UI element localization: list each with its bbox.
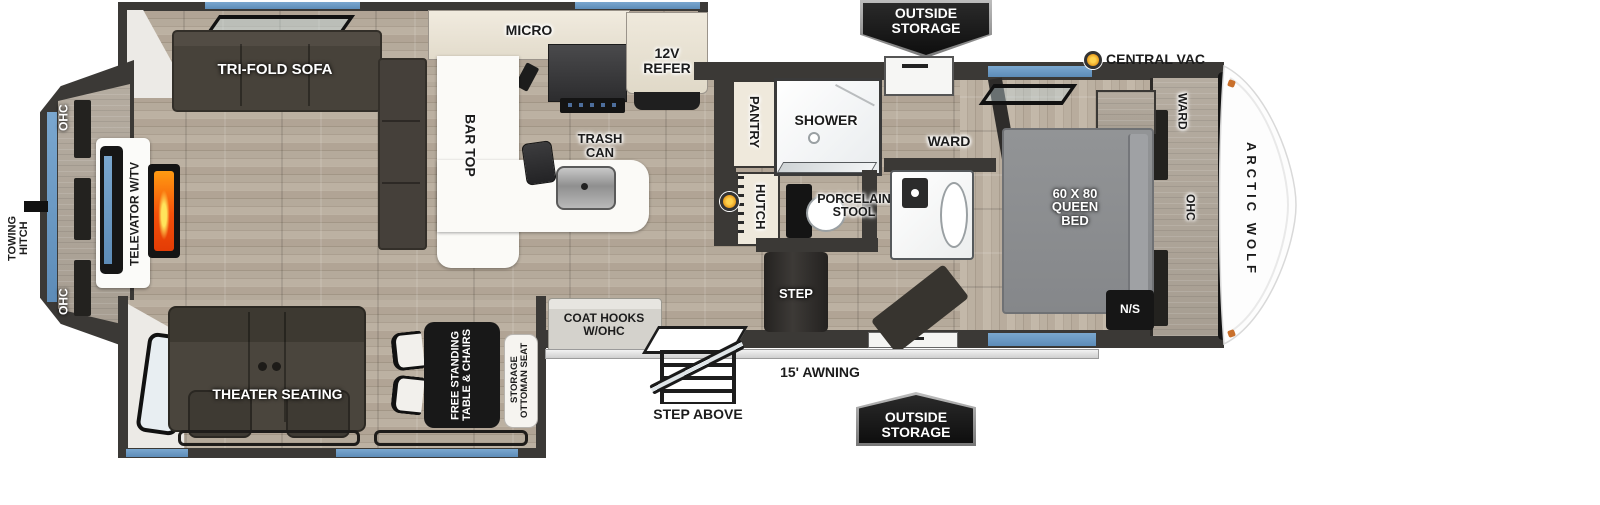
slide-window bbox=[205, 2, 360, 9]
front-cap bbox=[1216, 58, 1308, 352]
vanity-sink bbox=[940, 182, 968, 248]
monitor-dot bbox=[720, 192, 739, 211]
bedroom-window-top bbox=[988, 66, 1092, 77]
central-vac-dot bbox=[1084, 51, 1102, 69]
bar-top-label: BAR TOP bbox=[458, 95, 482, 195]
dinette-chair bbox=[390, 330, 425, 371]
stool-label: PORCELAIN STOOL bbox=[808, 188, 900, 224]
nightstand-label: N/S bbox=[1106, 298, 1154, 320]
cabinet-door bbox=[74, 178, 91, 240]
televator-label: TELEVATOR W/TV bbox=[124, 148, 146, 280]
step-label: STEP bbox=[766, 284, 826, 304]
ohc-rear-top-label: OHC bbox=[52, 96, 76, 140]
theater-label: THEATER SEATING bbox=[200, 384, 355, 404]
outside-storage-badge-top-face: OUTSIDE STORAGE bbox=[863, 3, 989, 55]
stove bbox=[548, 44, 627, 102]
cupholder bbox=[272, 362, 281, 371]
tv-screen bbox=[104, 156, 112, 264]
outside-storage-badge-bottom: OUTSIDE STORAGE bbox=[856, 392, 976, 446]
step-above-label: STEP ABOVE bbox=[636, 404, 760, 424]
rear-window bbox=[47, 112, 57, 302]
ottoman-label: STORAGE OTTOMAN SEAT bbox=[506, 338, 534, 422]
bottom-slide-wall-left bbox=[118, 296, 128, 458]
sofa-label: TRI-FOLD SOFA bbox=[190, 60, 360, 80]
fireplace bbox=[154, 171, 174, 251]
slide-window bbox=[575, 2, 700, 9]
bedroom-window-bottom bbox=[988, 333, 1096, 346]
floor-mat bbox=[374, 430, 528, 446]
micro-label: MICRO bbox=[495, 20, 563, 40]
cooktop-knobs bbox=[568, 103, 618, 107]
hutch-shelves bbox=[738, 176, 744, 238]
hutch-label: HUTCH bbox=[748, 176, 772, 238]
wall-bath-bottom bbox=[756, 238, 878, 252]
central-vac-label: CENTRAL VAC bbox=[1106, 50, 1210, 68]
ohc-rear-bottom-label: OHC bbox=[52, 280, 76, 324]
refer-label: 12V REFER bbox=[634, 42, 700, 80]
chaise-divider bbox=[382, 182, 420, 184]
dinette-chair bbox=[390, 374, 425, 415]
coat-hooks-label: COAT HOOKS W/OHC bbox=[552, 306, 656, 344]
ward-front-label: WARD bbox=[1172, 88, 1192, 134]
storage-compartment-top bbox=[884, 56, 954, 96]
shower-drain bbox=[808, 132, 820, 144]
brand-label: ARCTIC WOLF bbox=[1240, 126, 1262, 292]
vanity-faucet-dot bbox=[911, 189, 919, 197]
awning-roll bbox=[545, 349, 1099, 359]
slide-window bbox=[126, 449, 188, 457]
ward-mid-label: WARD bbox=[920, 130, 978, 152]
trash-can bbox=[521, 140, 557, 186]
bedroom-skylight bbox=[979, 84, 1078, 105]
chaise-divider bbox=[382, 120, 420, 122]
bed-pillows bbox=[1128, 134, 1148, 304]
dinette-table-label: FREE STANDING TABLE & CHAIRS bbox=[432, 328, 492, 422]
trash-label: TRASH CAN bbox=[558, 128, 642, 164]
sink-drain bbox=[581, 183, 588, 190]
awning-label: 15' AWNING bbox=[760, 362, 880, 382]
ohc-front-label: OHC bbox=[1180, 186, 1200, 228]
shower-label: SHOWER bbox=[786, 110, 866, 130]
bed-label: 60 X 80 QUEEN BED bbox=[1030, 178, 1120, 236]
outside-storage-badge-top: OUTSIDE STORAGE bbox=[860, 0, 992, 58]
cabinet-door bbox=[74, 100, 91, 158]
cabinet-door bbox=[74, 260, 91, 316]
storage-compartment-handle bbox=[902, 64, 928, 68]
outside-storage-badge-bottom-face: OUTSIDE STORAGE bbox=[859, 395, 973, 443]
pantry-label: PANTRY bbox=[742, 86, 766, 158]
cupholder bbox=[258, 362, 267, 371]
refer-base bbox=[634, 92, 700, 110]
wardrobe-door bbox=[1152, 250, 1168, 326]
sofa-chaise bbox=[378, 58, 427, 250]
floorplan-canvas: TRI-FOLD SOFA MICRO 12V REFER BAR TOP TR… bbox=[0, 0, 1600, 505]
floor-mat bbox=[178, 430, 360, 446]
slide-window bbox=[336, 449, 518, 457]
towing-hitch-label: TOWING HITCH bbox=[2, 194, 36, 282]
